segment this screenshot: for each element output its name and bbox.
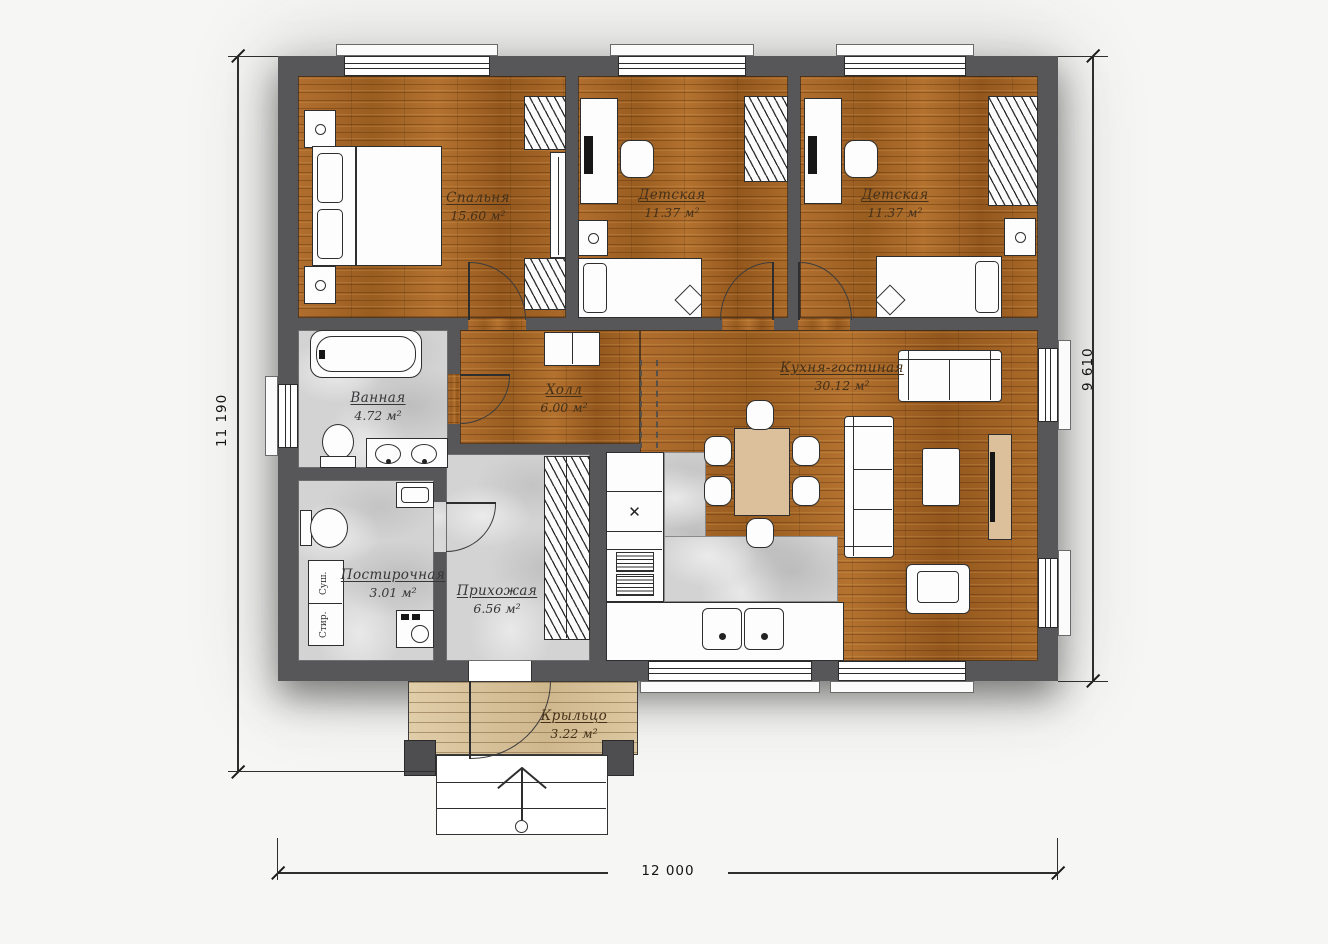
wardrobe-divider: [566, 457, 567, 638]
wardrobe: [744, 96, 788, 182]
room-label-kitchen-living: Кухня-гостиная 30.12 м²: [780, 360, 904, 393]
washer-dryer-cabinet: Суш. Стир.: [308, 560, 344, 646]
dresser-line: [558, 157, 559, 255]
drain-dot: [386, 459, 391, 464]
oven-icon: [616, 574, 654, 596]
room-label-kids-2: Детская 11.37 м²: [861, 187, 928, 220]
bathtub: [310, 330, 422, 378]
pillow: [317, 209, 343, 259]
window: [648, 661, 812, 681]
room-area: 6.56 м²: [457, 601, 537, 616]
window-sill: [830, 681, 974, 693]
drain-dot: [422, 459, 427, 464]
room-area: 4.72 м²: [350, 408, 405, 423]
hall-cabinet: [544, 332, 600, 366]
toilet-bowl: [310, 508, 348, 548]
armchair-cushion: [917, 571, 959, 603]
door-leaf: [772, 262, 774, 320]
bathroom-door-opening: [448, 374, 460, 424]
sink-basin: [401, 487, 429, 503]
wardrobe: [524, 258, 566, 310]
room-label-kids-1: Детская 11.37 м²: [638, 187, 705, 220]
extension-line: [1057, 838, 1058, 880]
monitor-icon: [584, 136, 593, 174]
floor-transition-dash: [640, 360, 642, 448]
room-area: 3.22 м²: [541, 726, 607, 741]
unit-divider: [607, 491, 662, 492]
double-bed: [312, 146, 442, 266]
window: [618, 56, 746, 76]
room-area: 30.12 м²: [780, 378, 904, 393]
sofa-cushion-line: [853, 469, 892, 470]
room-label-hall: Холл 6.00 м²: [540, 382, 587, 415]
window-sill: [336, 44, 498, 56]
kitchen-sink: [702, 608, 742, 650]
room-area: 3.01 м²: [341, 585, 445, 600]
oven-icon: [616, 552, 654, 572]
nightstand: [304, 266, 336, 304]
bathtub-basin: [316, 336, 416, 372]
window-sill: [610, 44, 754, 56]
room-name: Крыльцо: [541, 708, 607, 724]
lamp-icon: [315, 124, 326, 135]
armchair: [906, 564, 970, 614]
kitchen-sink: [744, 608, 784, 650]
room-label-porch: Крыльцо 3.22 м²: [541, 708, 607, 741]
room-name: Холл: [540, 382, 587, 398]
entry-wardrobe: [544, 456, 590, 640]
cabinet-divider: [572, 333, 573, 364]
room-area: 6.00 м²: [540, 400, 587, 415]
room-label-entry: Прихожая 6.56 м²: [457, 583, 537, 616]
vanity-double-sink: [366, 438, 448, 468]
extension-line: [277, 838, 278, 880]
three-seat-sofa: [844, 416, 894, 558]
window-sill: [1058, 550, 1071, 636]
dimension-label-bottom: 12 000: [608, 863, 728, 879]
dimension-label-right: 9 610: [1080, 325, 1102, 413]
dryer-label: Суш.: [319, 565, 333, 601]
window-sill: [1058, 340, 1071, 430]
single-bed: [876, 256, 1002, 318]
room-label-bedroom: Спальня 15.60 м²: [446, 190, 510, 223]
window-sill: [836, 44, 974, 56]
pillow: [975, 261, 999, 313]
blanket-fold: [674, 284, 702, 315]
window: [278, 384, 298, 448]
unit-divider: [607, 549, 662, 550]
unit-divider: [607, 531, 662, 532]
sofa-arm-line: [908, 351, 909, 400]
room-name: Детская: [861, 187, 928, 203]
single-bed: [578, 258, 702, 318]
laundry-door-opening: [434, 502, 446, 552]
front-door-opening: [468, 661, 532, 681]
lamp-icon: [315, 280, 326, 291]
room-name: Детская: [638, 187, 705, 203]
dining-chair: [792, 476, 820, 506]
room-area: 15.60 м²: [446, 208, 510, 223]
toilet-tank: [320, 456, 356, 468]
lamp-icon: [588, 233, 599, 244]
sofa-arm-line: [990, 351, 991, 400]
dining-chair: [746, 400, 774, 430]
wardrobe: [988, 96, 1038, 206]
dimension-label-left: 11 190: [214, 373, 236, 467]
sofa-arm-line: [845, 546, 892, 547]
washer-button: [412, 614, 420, 620]
sofa-cushion-line: [949, 359, 950, 400]
window: [1038, 348, 1058, 422]
room-name: Ванная: [350, 390, 405, 406]
window-sill: [265, 376, 278, 456]
hob-icon: ✕: [607, 503, 662, 521]
window: [844, 56, 966, 76]
floor-transition-dash: [656, 360, 658, 448]
window: [344, 56, 490, 76]
coffee-table: [922, 448, 960, 506]
arrow-origin-circle: [515, 820, 528, 833]
sofa-back-line: [853, 417, 854, 556]
sofa-arm-line: [845, 426, 892, 427]
room-name: Постирочная: [341, 567, 445, 583]
dresser: [550, 152, 566, 258]
laundry-sink: [396, 482, 434, 508]
window-sill: [640, 681, 820, 693]
room-name: Кухня-гостиная: [780, 360, 904, 376]
nightstand: [304, 110, 336, 148]
nightstand: [578, 220, 608, 256]
window: [838, 661, 966, 681]
drain-dot: [719, 633, 726, 640]
washer-button: [401, 614, 409, 620]
room-area: 11.37 м²: [861, 205, 928, 220]
faucet-icon: [319, 350, 325, 359]
extension-line: [228, 771, 436, 772]
lamp-icon: [1015, 232, 1026, 243]
blanket-edge: [355, 147, 357, 266]
entry-direction-arrow: [521, 768, 523, 826]
washer-label: Стир.: [319, 607, 333, 643]
loveseat-sofa: [898, 350, 1002, 402]
wardrobe: [524, 96, 566, 150]
desk-chair: [844, 140, 878, 178]
extension-line: [1058, 56, 1108, 57]
blanket-fold: [876, 284, 906, 315]
nightstand: [1004, 218, 1036, 256]
washing-machine: [396, 610, 434, 648]
tv-icon: [990, 452, 995, 522]
room-label-laundry: Постирочная 3.01 м²: [341, 567, 445, 600]
dining-chair: [704, 476, 732, 506]
extension-line: [228, 56, 278, 57]
floor-plan-canvas: Суш. Стир. ✕: [0, 0, 1328, 944]
extension-line: [1058, 681, 1108, 682]
sofa-cushion-line: [853, 509, 892, 510]
room-area: 11.37 м²: [638, 205, 705, 220]
dimension-line-left: [237, 56, 239, 772]
dining-chair: [746, 518, 774, 548]
dining-chair: [704, 436, 732, 466]
cabinet-divider: [309, 603, 342, 604]
room-name: Спальня: [446, 190, 510, 206]
window: [1038, 558, 1058, 628]
washer-door-icon: [411, 625, 429, 643]
pillow: [583, 263, 607, 313]
dining-chair: [792, 436, 820, 466]
monitor-icon: [808, 136, 817, 174]
room-label-bathroom: Ванная 4.72 м²: [350, 390, 405, 423]
room-name: Прихожая: [457, 583, 537, 599]
pillow: [317, 153, 343, 203]
drain-dot: [761, 633, 768, 640]
desk-chair: [620, 140, 654, 178]
dining-table: [734, 428, 790, 516]
toilet-bowl: [322, 424, 354, 460]
